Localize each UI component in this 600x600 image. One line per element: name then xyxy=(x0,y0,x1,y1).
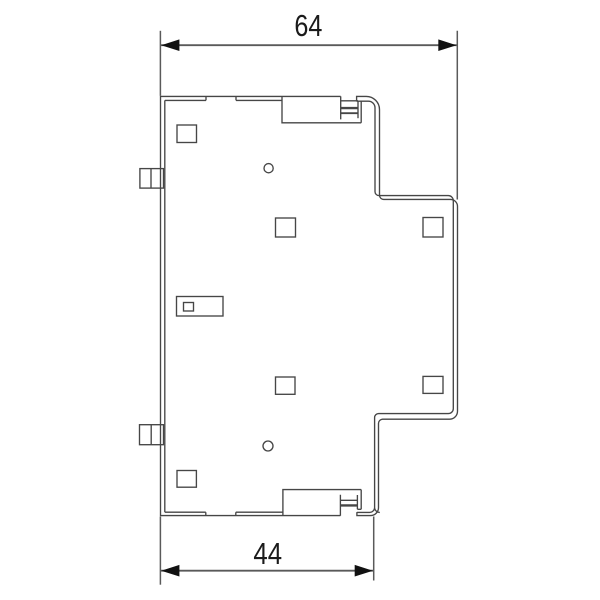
svg-text:44: 44 xyxy=(253,536,282,571)
svg-text:64: 64 xyxy=(294,8,322,43)
